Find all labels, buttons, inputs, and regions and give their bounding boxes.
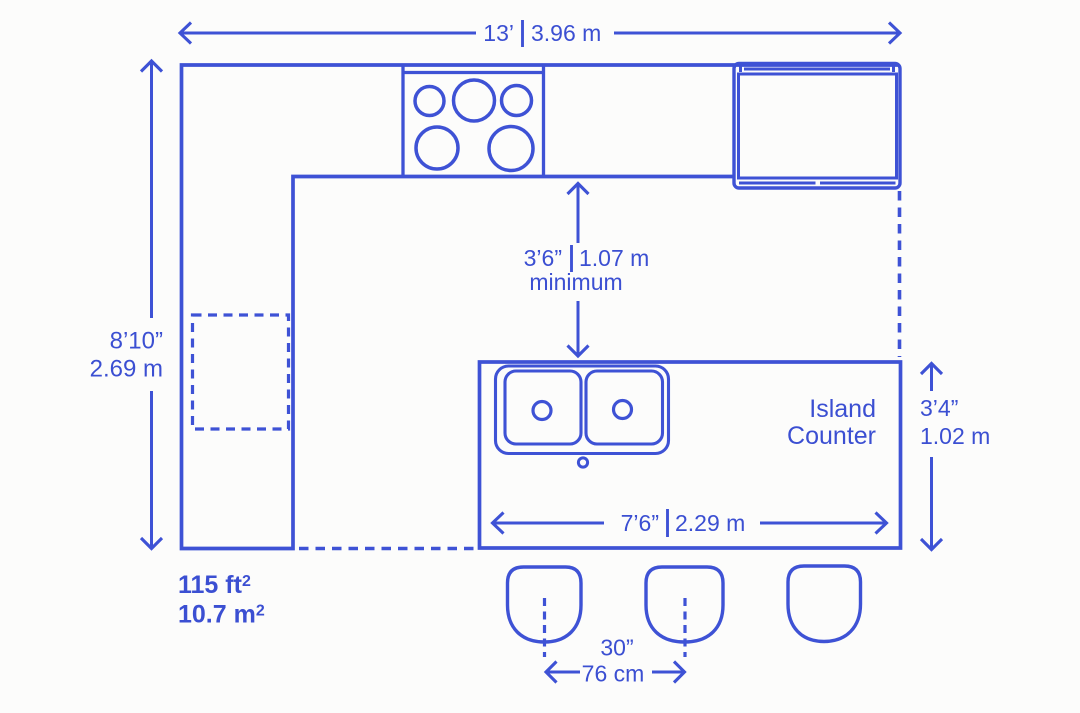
svg-text:Counter: Counter <box>787 422 876 450</box>
svg-text:3.96 m: 3.96 m <box>531 20 601 46</box>
svg-text:minimum: minimum <box>529 269 622 295</box>
svg-text:8’10”: 8’10” <box>110 328 163 355</box>
svg-text:7’6”: 7’6” <box>621 510 659 536</box>
svg-text:13’: 13’ <box>483 20 514 46</box>
svg-text:76 cm: 76 cm <box>582 661 645 687</box>
svg-text:3’4”: 3’4” <box>920 395 958 421</box>
svg-text:Island: Island <box>809 395 876 423</box>
svg-text:115 ft2: 115 ft2 <box>178 571 251 599</box>
svg-text:2.69 m: 2.69 m <box>90 356 163 383</box>
svg-text:1.07 m: 1.07 m <box>579 245 649 271</box>
svg-text:10.7 m2: 10.7 m2 <box>178 601 265 629</box>
svg-text:1.02 m: 1.02 m <box>920 423 990 449</box>
svg-text:3’6”: 3’6” <box>524 245 562 271</box>
svg-text:2.29 m: 2.29 m <box>675 510 745 536</box>
svg-text:30”: 30” <box>600 635 633 661</box>
